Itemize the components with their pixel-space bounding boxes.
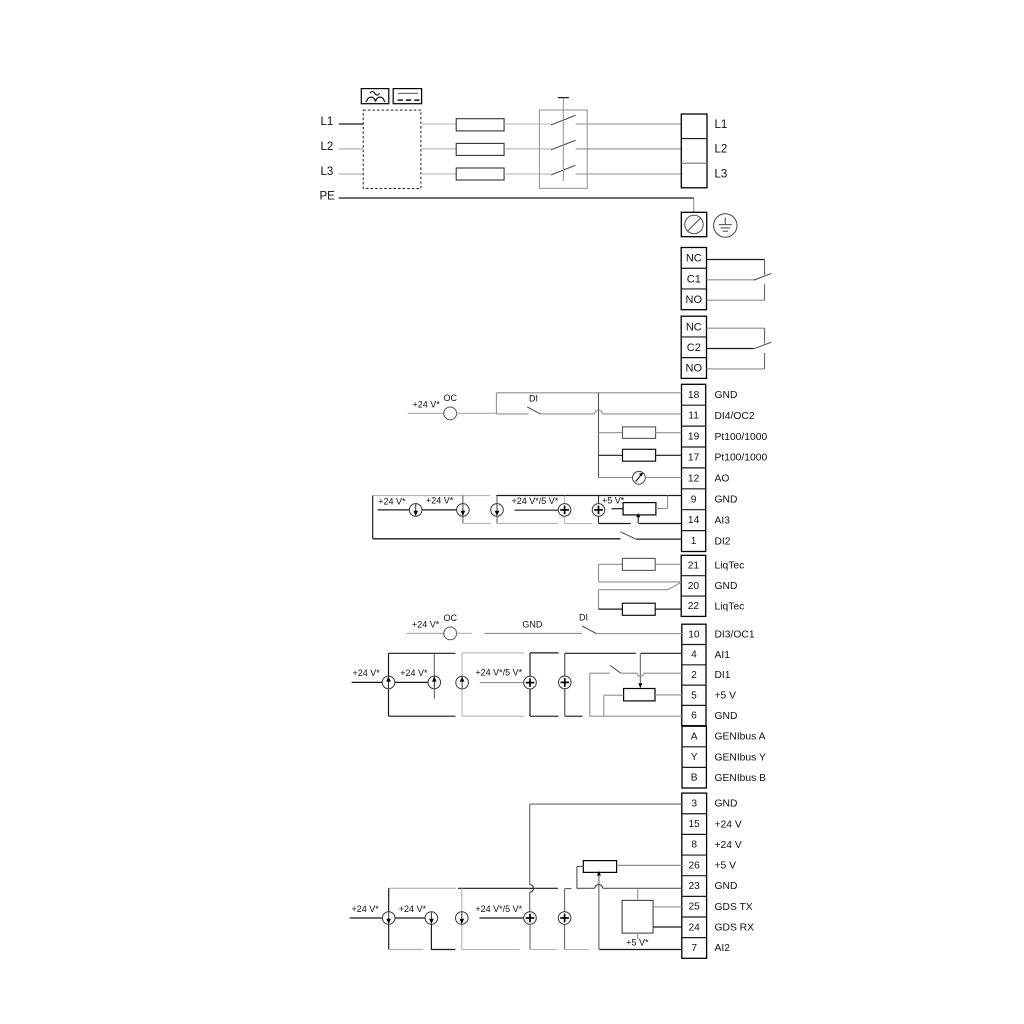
svg-text:2: 2: [691, 670, 697, 681]
svg-text:+5 V*: +5 V*: [602, 496, 625, 506]
svg-text:7: 7: [691, 943, 697, 954]
svg-text:+24 V*: +24 V*: [426, 496, 454, 506]
svg-text:19: 19: [688, 432, 700, 443]
svg-text:OC: OC: [444, 393, 458, 403]
svg-text:+5 V: +5 V: [715, 861, 737, 872]
svg-text:10: 10: [688, 629, 700, 640]
svg-text:GND: GND: [715, 390, 738, 401]
svg-text:OC: OC: [444, 613, 458, 623]
svg-text:11: 11: [688, 411, 699, 422]
svg-text:6: 6: [691, 711, 697, 722]
svg-text:+24 V*: +24 V*: [352, 904, 380, 914]
svg-text:NO: NO: [686, 294, 703, 306]
svg-text:15: 15: [689, 819, 701, 830]
svg-text:PE: PE: [320, 191, 336, 203]
svg-text:3: 3: [691, 798, 697, 809]
svg-text:9: 9: [691, 494, 697, 505]
svg-text:AI1: AI1: [715, 650, 731, 661]
svg-text:8: 8: [691, 840, 697, 851]
svg-text:18: 18: [688, 390, 700, 401]
svg-text:Pt100/1000: Pt100/1000: [715, 453, 768, 464]
svg-text:AI2: AI2: [715, 943, 731, 954]
svg-text:1: 1: [691, 536, 697, 547]
svg-text:5: 5: [691, 690, 697, 701]
svg-text:DI2: DI2: [715, 536, 731, 547]
svg-text:+24 V*: +24 V*: [353, 668, 381, 678]
svg-text:GND: GND: [715, 799, 738, 810]
svg-text:Pt100/1000: Pt100/1000: [715, 432, 768, 443]
svg-text:GDS TX: GDS TX: [715, 902, 753, 913]
svg-text:Y: Y: [691, 752, 698, 763]
svg-text:+24 V*/5 V*: +24 V*/5 V*: [475, 904, 522, 914]
svg-text:DI1: DI1: [715, 670, 731, 681]
svg-text:DI: DI: [579, 613, 588, 623]
svg-text:17: 17: [688, 452, 700, 463]
svg-text:GND: GND: [522, 619, 543, 629]
svg-text:+24 V: +24 V: [715, 840, 742, 851]
svg-text:+24 V*: +24 V*: [399, 904, 427, 914]
svg-text:B: B: [691, 773, 698, 784]
svg-text:L1: L1: [715, 119, 728, 131]
svg-text:L2: L2: [715, 143, 728, 155]
svg-text:23: 23: [689, 881, 701, 892]
svg-text:GENIbus Y: GENIbus Y: [715, 752, 766, 763]
svg-text:GND: GND: [715, 711, 738, 722]
svg-text:+24 V*: +24 V*: [413, 400, 441, 410]
svg-text:L1: L1: [321, 116, 334, 128]
svg-text:NC: NC: [686, 253, 702, 265]
svg-text:L3: L3: [715, 168, 728, 180]
svg-text:GENIbus A: GENIbus A: [715, 732, 766, 743]
svg-text:L3: L3: [321, 166, 334, 178]
svg-text:NC: NC: [686, 321, 702, 333]
svg-text:DI: DI: [529, 394, 538, 404]
svg-text:22: 22: [688, 601, 700, 612]
svg-text:NO: NO: [686, 363, 703, 375]
svg-text:+24 V*/5 V*: +24 V*/5 V*: [475, 667, 522, 677]
svg-text:DI4/OC2: DI4/OC2: [715, 411, 755, 422]
svg-text:C1: C1: [687, 273, 701, 285]
svg-text:GND: GND: [715, 494, 738, 505]
svg-text:4: 4: [691, 650, 697, 661]
svg-text:C2: C2: [687, 342, 701, 354]
svg-text:GDS RX: GDS RX: [715, 923, 755, 934]
svg-text:GND: GND: [715, 881, 738, 892]
svg-text:+24 V: +24 V: [715, 819, 742, 830]
svg-text:+24 V*: +24 V*: [400, 668, 428, 678]
svg-text:26: 26: [689, 860, 701, 871]
svg-text:+24 V*: +24 V*: [378, 496, 406, 506]
svg-text:DI3/OC1: DI3/OC1: [715, 630, 755, 641]
svg-text:+5 V: +5 V: [715, 690, 737, 701]
svg-text:14: 14: [688, 515, 700, 526]
svg-text:12: 12: [688, 473, 700, 484]
svg-text:+5 V*: +5 V*: [626, 937, 649, 947]
svg-text:LiqTec: LiqTec: [715, 561, 745, 572]
svg-text:24: 24: [689, 922, 701, 933]
svg-text:25: 25: [689, 902, 701, 913]
svg-text:A: A: [691, 732, 698, 743]
svg-text:AO: AO: [715, 474, 730, 485]
svg-text:L2: L2: [321, 141, 334, 153]
svg-text:LiqTec: LiqTec: [715, 601, 745, 612]
svg-text:GENIbus B: GENIbus B: [715, 773, 767, 784]
svg-text:+24 V*/5 V*: +24 V*/5 V*: [512, 496, 559, 506]
svg-text:+24 V*: +24 V*: [412, 619, 440, 629]
svg-text:AI3: AI3: [715, 515, 731, 526]
svg-text:21: 21: [688, 560, 700, 571]
svg-text:GND: GND: [715, 581, 738, 592]
svg-text:20: 20: [688, 581, 700, 592]
